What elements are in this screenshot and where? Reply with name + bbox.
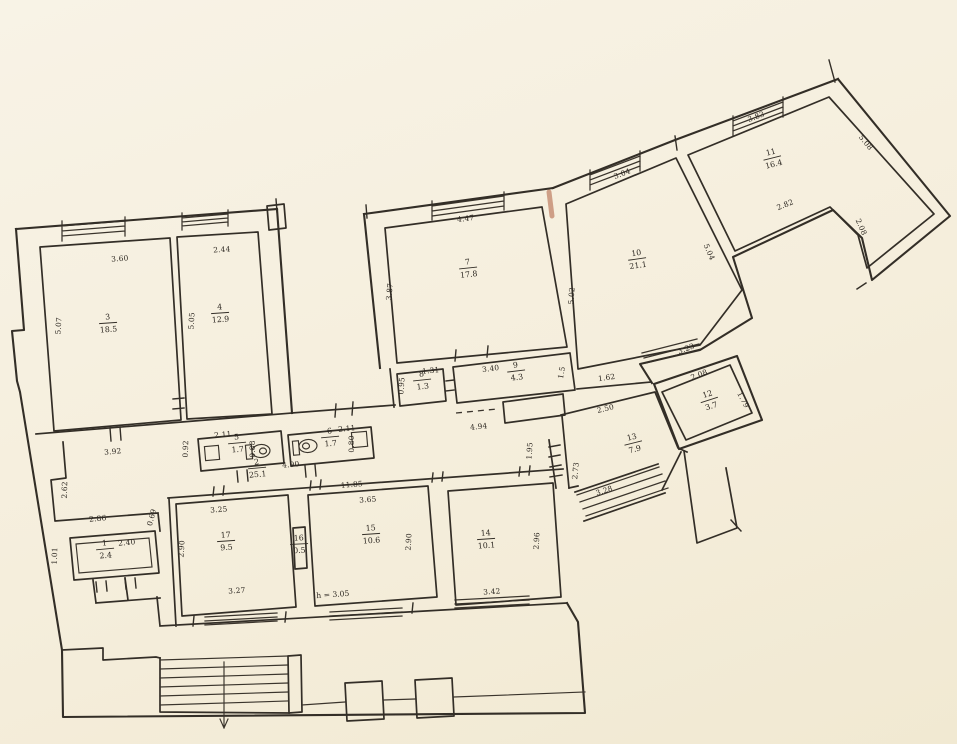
fraction-bar [99,322,117,323]
room-label-17: 179.5 [216,530,235,553]
dimension-label: 3.27 [228,585,246,595]
room-number: 6 [327,426,333,435]
floor-plan-page: 12.4225.1318.5412.951.761.7717.881.394.3… [0,0,957,744]
room-label-3: 318.5 [98,312,117,335]
room-label-7: 717.8 [458,257,478,280]
room-label-9: 94.3 [506,359,526,383]
dimension-label: 5.02 [566,287,576,305]
room-label-6: 61.7 [320,426,340,449]
room-area: 7.9 [628,443,642,455]
dimension-label: 4.90 [282,459,300,469]
toilet-bowl-icon [260,448,267,454]
dimension-label: 1.31 [422,365,440,376]
room-number: 14 [480,528,491,538]
dimension-label: 0.95 [396,377,406,395]
dimension-label: 1.62 [597,372,615,383]
room-area: 21.1 [629,260,647,271]
dimension-label: 4.47 [457,213,475,224]
dimension-label: 3.65 [359,494,377,504]
exterior-walls [12,60,950,717]
room-label-2: 225.1 [247,457,267,480]
dimension-label: 2.86 [89,513,107,523]
dimension-label: 3.60 [111,253,129,263]
dimension-label: 1.95 [525,442,535,460]
dimension-label: 2.08 [689,367,708,382]
room-number: 15 [365,523,376,533]
room-area: 18.5 [100,324,118,334]
room-number: 16 [294,533,304,543]
dimension-label: 0.88 [248,440,257,457]
labels-layer: 12.4225.1318.5412.951.761.7717.881.394.3… [50,109,875,600]
room-number: 7 [465,257,471,266]
room-area: 1.7 [324,438,337,448]
room-label-11: 1116.4 [761,146,784,171]
dimension-label: 2.11 [338,423,356,433]
fraction-bar [96,548,114,550]
room-label-4: 412.9 [210,302,229,325]
dimension-label: 5.08 [857,133,875,152]
dimension-label: 2.82 [775,197,794,212]
dimension-label: 1.01 [50,547,60,565]
room-number: 17 [220,530,231,540]
room-area: 9.5 [220,543,233,553]
room-number: 1 [102,538,108,547]
room-number: 9 [512,360,518,370]
room-area: 1.7 [231,444,244,454]
fraction-bar [228,442,246,444]
room-number: 13 [626,432,638,443]
dimension-label: 3.04 [612,166,631,181]
room-number: 12 [701,388,713,400]
dimension-label: 2.44 [213,245,231,255]
room-number: 11 [765,147,777,158]
room-area: 17.8 [460,269,478,280]
room-area: 4.3 [510,372,523,382]
room-area: 0.5 [293,546,306,556]
toilet-icon [298,439,317,454]
fraction-bar [477,538,495,539]
pen-mark [549,192,552,216]
room-area: 2.4 [99,550,112,560]
dimension-label: 0.80 [347,435,356,452]
ceiling-height-note: h = 3.05 [316,589,350,600]
room-label-10: 1021.1 [627,247,648,271]
dimension-label: 3.92 [104,446,122,456]
dimension-label: 4.94 [470,421,488,432]
dimension-label: 2.90 [404,533,414,551]
dimension-label: 3.28 [595,484,614,498]
room-number: 2 [254,457,260,466]
room-number: 5 [234,432,240,441]
room-area: 16.4 [764,158,783,171]
pillar [415,678,454,718]
dimension-label: 2.62 [60,481,70,499]
dimension-label: 0.69 [145,508,158,527]
room-area: 12.9 [212,314,230,324]
room-number: 4 [217,302,223,311]
dimension-label: 2.96 [532,532,542,550]
toilet-tank-icon [292,441,299,455]
dimension-label: 3.25 [210,504,228,514]
room-area: 10.6 [363,535,381,545]
dimension-label: 3.87 [384,283,395,301]
room-number: 10 [631,248,642,258]
fraction-bar [362,533,380,534]
dimension-label: 2.11 [214,429,232,439]
dimension-label: 1.5 [556,366,567,380]
dimension-label: 2.90 [177,540,187,558]
toilet-bowl-icon [303,443,310,449]
floor-plan-svg: 12.4225.1318.5412.951.761.7717.881.394.3… [0,0,957,744]
dimension-label: 2.50 [596,402,615,415]
dimension-label: 3.42 [483,586,501,596]
dimension-label: 5.07 [53,317,63,335]
room-number: 3 [105,312,111,321]
room-area: 10.1 [478,540,496,550]
fraction-bar [321,436,339,438]
dimension-label: 3.40 [482,363,500,374]
fraction-bar [217,540,235,541]
fraction-bar [211,312,229,313]
room-label-14: 1410.1 [476,528,495,551]
dimension-label: 0.92 [181,440,191,458]
stair-direction-arrow-icon [220,662,228,728]
room-area: 3.7 [704,400,719,412]
sink-icon [204,445,219,460]
room-label-13: 137.9 [622,431,645,456]
room-label-15: 1510.6 [361,523,380,546]
dimension-label: 2.40 [118,537,136,547]
dimension-label: 5.05 [187,312,197,330]
dimension-label: 5.04 [702,242,717,262]
room-area: 1.3 [416,381,429,391]
dimension-label: 11.85 [340,479,363,490]
dimension-label: 2.73 [570,462,581,480]
room-label-12: 123.7 [698,387,722,413]
room-area: 25.1 [249,469,267,479]
